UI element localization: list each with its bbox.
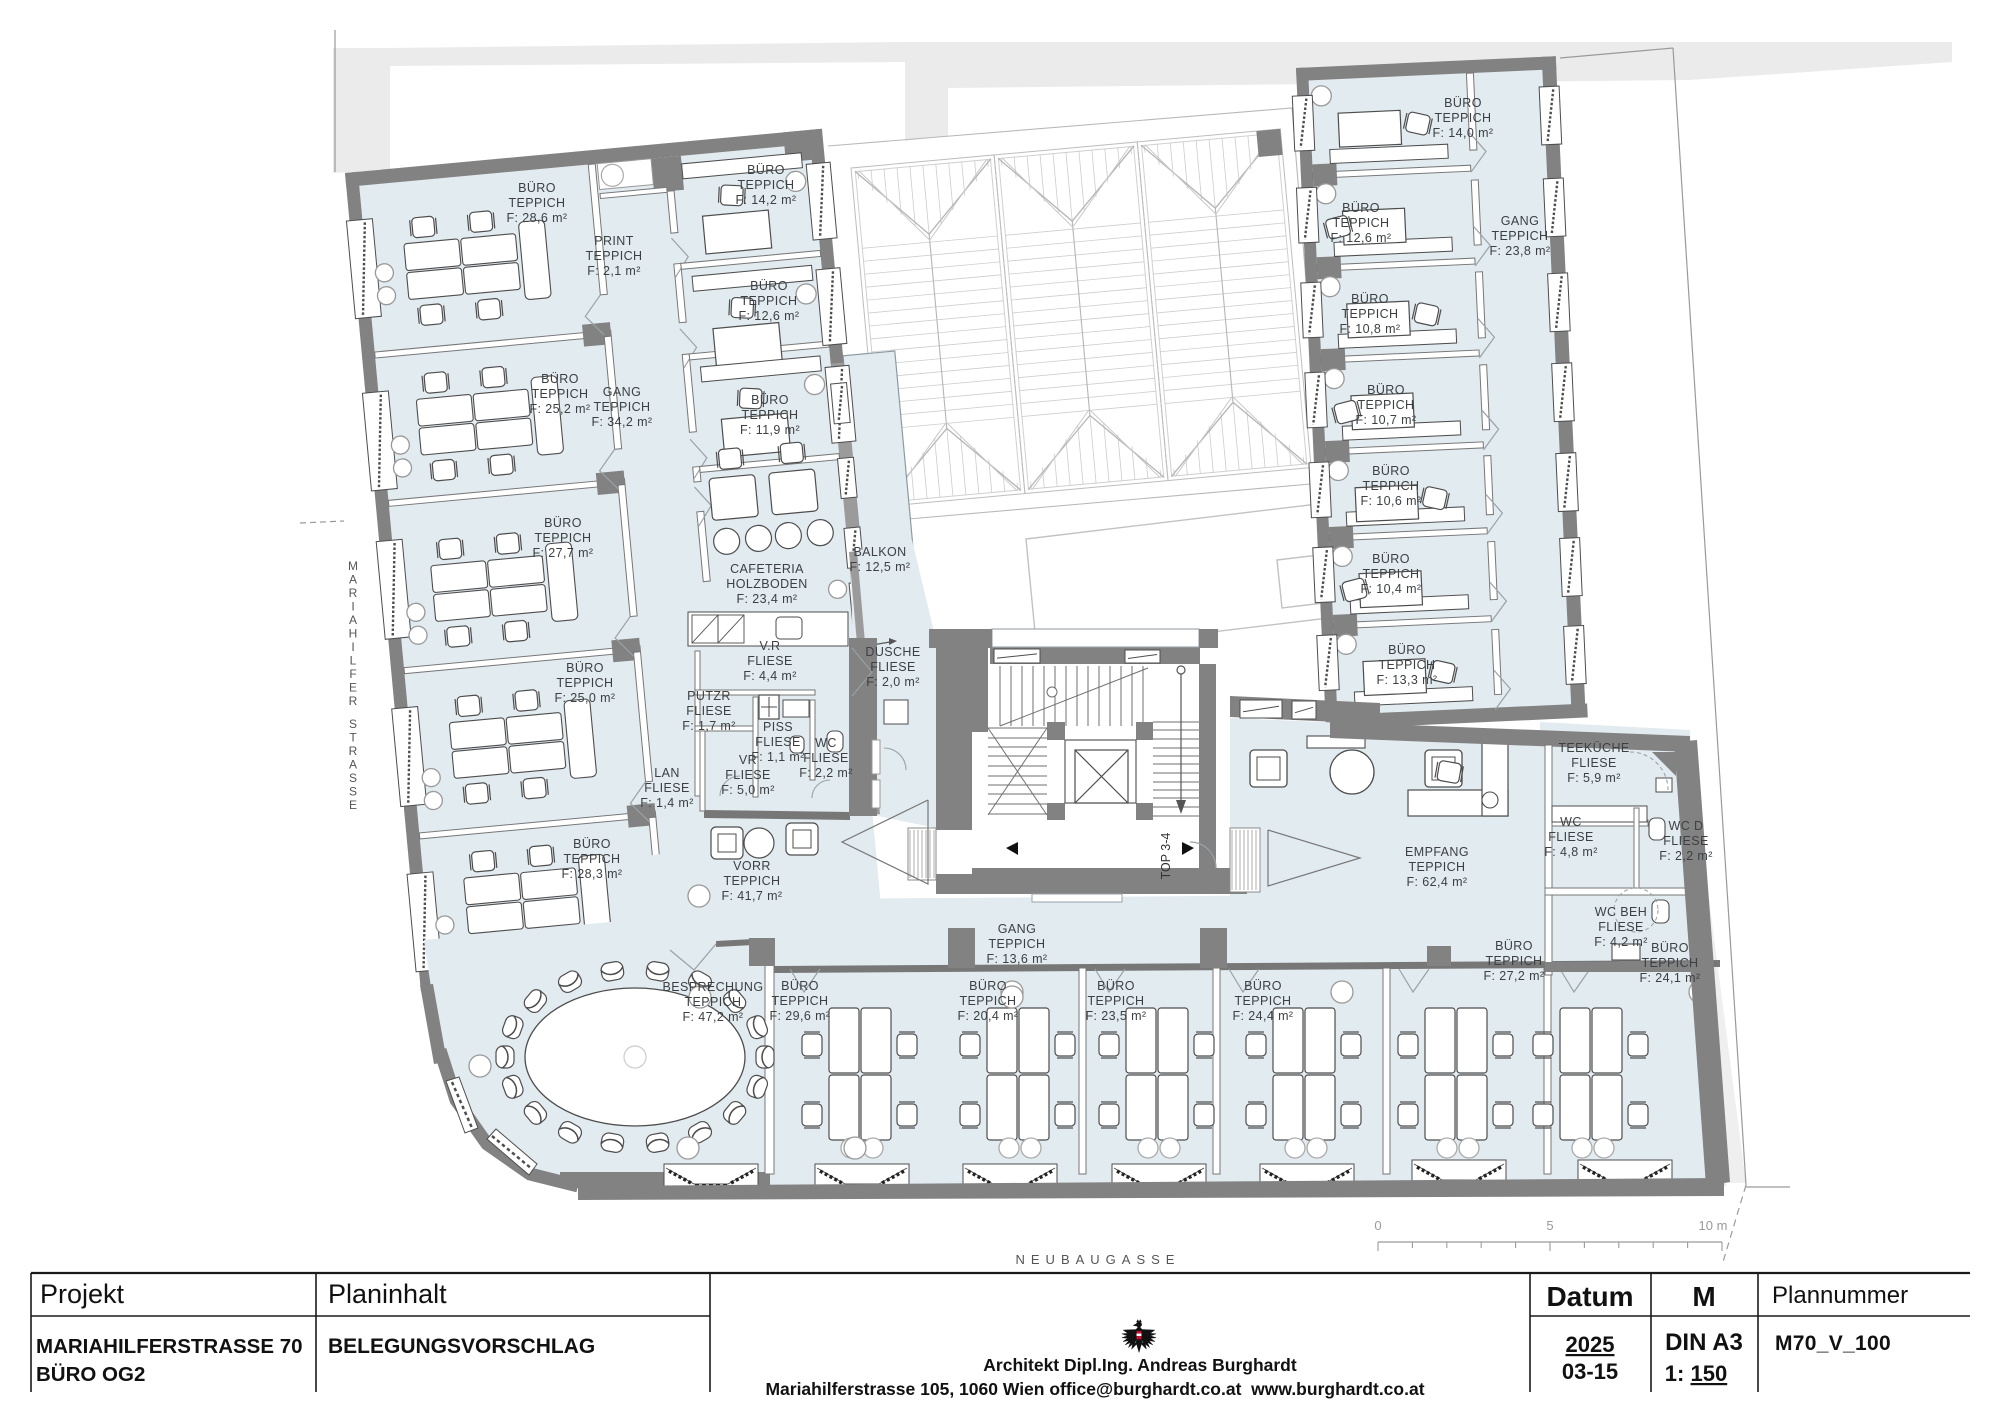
svg-text:S: S: [349, 717, 357, 731]
svg-text:T: T: [349, 731, 357, 745]
svg-text:5: 5: [1546, 1218, 1553, 1233]
svg-text:Projekt: Projekt: [40, 1279, 125, 1309]
svg-text:L: L: [350, 654, 357, 668]
svg-text:WC BEHFLIESEF: 4,2 m²: WC BEHFLIESEF: 4,2 m²: [1594, 905, 1648, 949]
svg-text:R: R: [349, 744, 358, 758]
svg-text:1: 150: 1: 150: [1665, 1361, 1727, 1386]
svg-text:I: I: [351, 600, 354, 614]
svg-text:F: F: [349, 667, 356, 681]
svg-text:M: M: [1692, 1281, 1715, 1312]
svg-text:S: S: [349, 771, 357, 785]
svg-text:DUSCHEFLIESEF: 2,0 m²: DUSCHEFLIESEF: 2,0 m²: [865, 645, 920, 689]
svg-text:A: A: [349, 613, 357, 627]
svg-text:BÜRO OG2: BÜRO OG2: [36, 1363, 145, 1386]
svg-text:Plannummer: Plannummer: [1772, 1282, 1908, 1309]
svg-text:PUTZRFLIESEF: 1,7 m²: PUTZRFLIESEF: 1,7 m²: [682, 689, 736, 733]
svg-text:Datum: Datum: [1546, 1281, 1633, 1312]
svg-text:E: E: [349, 798, 357, 812]
svg-text:10 m: 10 m: [1699, 1218, 1728, 1233]
svg-text:03-15: 03-15: [1562, 1359, 1618, 1384]
svg-text:MARIAHILFERSTRASSE 70: MARIAHILFERSTRASSE 70: [36, 1335, 303, 1358]
svg-text:Planinhalt: Planinhalt: [328, 1279, 447, 1309]
svg-text:NEUBAUGASSE: NEUBAUGASSE: [1016, 1252, 1181, 1267]
svg-text:BALKONF: 12,5 m²: BALKONF: 12,5 m²: [850, 545, 911, 574]
svg-text:R: R: [349, 694, 358, 708]
svg-text:H: H: [349, 627, 358, 641]
svg-text:CAFETERIAHOLZBODENF: 23,4 m²: CAFETERIAHOLZBODENF: 23,4 m²: [726, 562, 807, 606]
svg-text:R: R: [349, 586, 358, 600]
svg-text:M: M: [348, 559, 358, 573]
svg-text:E: E: [349, 681, 357, 695]
svg-text:Mariahilferstrasse 105, 1060 W: Mariahilferstrasse 105, 1060 Wien office…: [765, 1379, 1424, 1399]
svg-text:DIN A3: DIN A3: [1665, 1329, 1743, 1356]
svg-text:A: A: [349, 573, 357, 587]
svg-text:2025: 2025: [1566, 1332, 1615, 1357]
svg-text:S: S: [349, 785, 357, 799]
svg-text:A: A: [349, 758, 357, 772]
svg-text:0: 0: [1374, 1218, 1381, 1233]
svg-text:TOP 3-4: TOP 3-4: [1159, 833, 1173, 880]
svg-text:BELEGUNGSVORSCHLAG: BELEGUNGSVORSCHLAG: [328, 1335, 595, 1358]
svg-text:I: I: [351, 640, 354, 654]
svg-text:M70_V_100: M70_V_100: [1775, 1332, 1891, 1355]
svg-text:EMPFANGTEPPICHF: 62,4 m²: EMPFANGTEPPICHF: 62,4 m²: [1405, 845, 1469, 889]
svg-text:Architekt Dipl.Ing. Andreas Bu: Architekt Dipl.Ing. Andreas Burghardt: [983, 1355, 1297, 1375]
